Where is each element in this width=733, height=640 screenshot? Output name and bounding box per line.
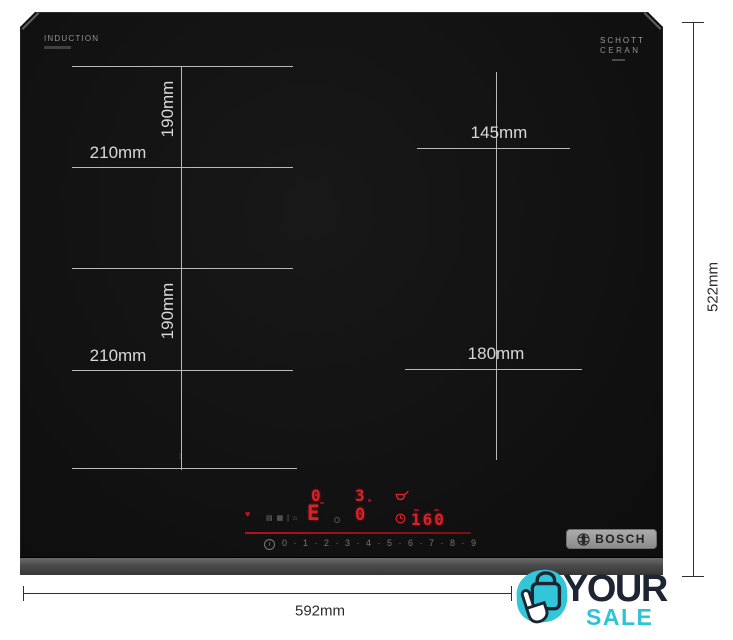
- lock-pause-icons: ▤ ▦ | ⌂: [266, 515, 298, 522]
- height-tick-top: [682, 22, 704, 23]
- selector-mark: [320, 502, 324, 504]
- watermark-sale-text: SALE: [586, 606, 653, 629]
- left-front-bottom-line: [72, 468, 297, 469]
- pan-icon: [394, 489, 409, 502]
- display-zone-front: 0: [355, 507, 365, 524]
- watermark-your-text: YOUR: [563, 570, 667, 608]
- left-front-width-line: [72, 370, 293, 371]
- bosch-emblem-icon: [577, 533, 590, 546]
- zone-height-label-rear: 190mm: [158, 81, 178, 138]
- bosch-badge: BOSCH: [566, 529, 657, 549]
- corner-facet-left: [22, 12, 40, 30]
- power-sub-mark: [368, 499, 371, 502]
- schott-ceran-logo: SCHOTT CERAN: [600, 36, 645, 61]
- display-power-level: 3: [355, 488, 365, 504]
- info-icon: i: [264, 539, 275, 550]
- display-selector: E: [307, 503, 320, 524]
- induction-label: INDUCTION: [44, 34, 99, 43]
- total-height-label: 522mm: [705, 262, 722, 312]
- left-rear-width-line: [72, 167, 293, 168]
- heat-indicator-icon: ♥: [245, 510, 250, 519]
- micro-text: [612, 59, 625, 61]
- ceran-text: CERAN: [600, 46, 645, 55]
- induction-print: INDUCTION: [44, 34, 99, 49]
- zone-link-dot: [334, 517, 340, 523]
- corner-facet-right: [644, 12, 662, 30]
- zone-width-label-rear: 210mm: [90, 143, 147, 163]
- display-timer: 160: [411, 512, 446, 528]
- your-sale-watermark: YOUR SALE: [510, 564, 733, 640]
- power-scale-row: 0 · 1 · 2 · 3 · 4 · 5 · 6 · 7 · 8 · 9: [282, 539, 478, 549]
- height-dimension-line: [693, 22, 694, 577]
- zone-marker-icon: ⌇: [178, 452, 182, 461]
- control-panel-underline: [245, 532, 471, 534]
- width-dimension-line: [23, 593, 512, 594]
- model-number-text: [44, 46, 71, 49]
- left-rear-top-line: [72, 66, 293, 67]
- cooktop-glass-panel: INDUCTION SCHOTT CERAN 190mm 210mm 190mm…: [20, 12, 663, 575]
- schott-text: SCHOTT: [600, 36, 645, 45]
- right-front-width-line: [405, 369, 582, 370]
- zone-width-label-front: 210mm: [90, 346, 147, 366]
- zone-height-label-front: 190mm: [158, 283, 178, 340]
- right-rear-width-line: [417, 148, 570, 149]
- left-front-top-line: [72, 268, 293, 269]
- product-dimension-diagram: INDUCTION SCHOTT CERAN 190mm 210mm 190mm…: [0, 0, 733, 640]
- width-tick-left: [23, 586, 24, 601]
- small-zone-width-label: 145mm: [471, 123, 528, 143]
- mid-zone-width-label: 180mm: [468, 344, 525, 364]
- total-width-label: 592mm: [295, 603, 345, 620]
- timer-clock-icon: [395, 513, 406, 524]
- bosch-logo-text: BOSCH: [595, 532, 646, 546]
